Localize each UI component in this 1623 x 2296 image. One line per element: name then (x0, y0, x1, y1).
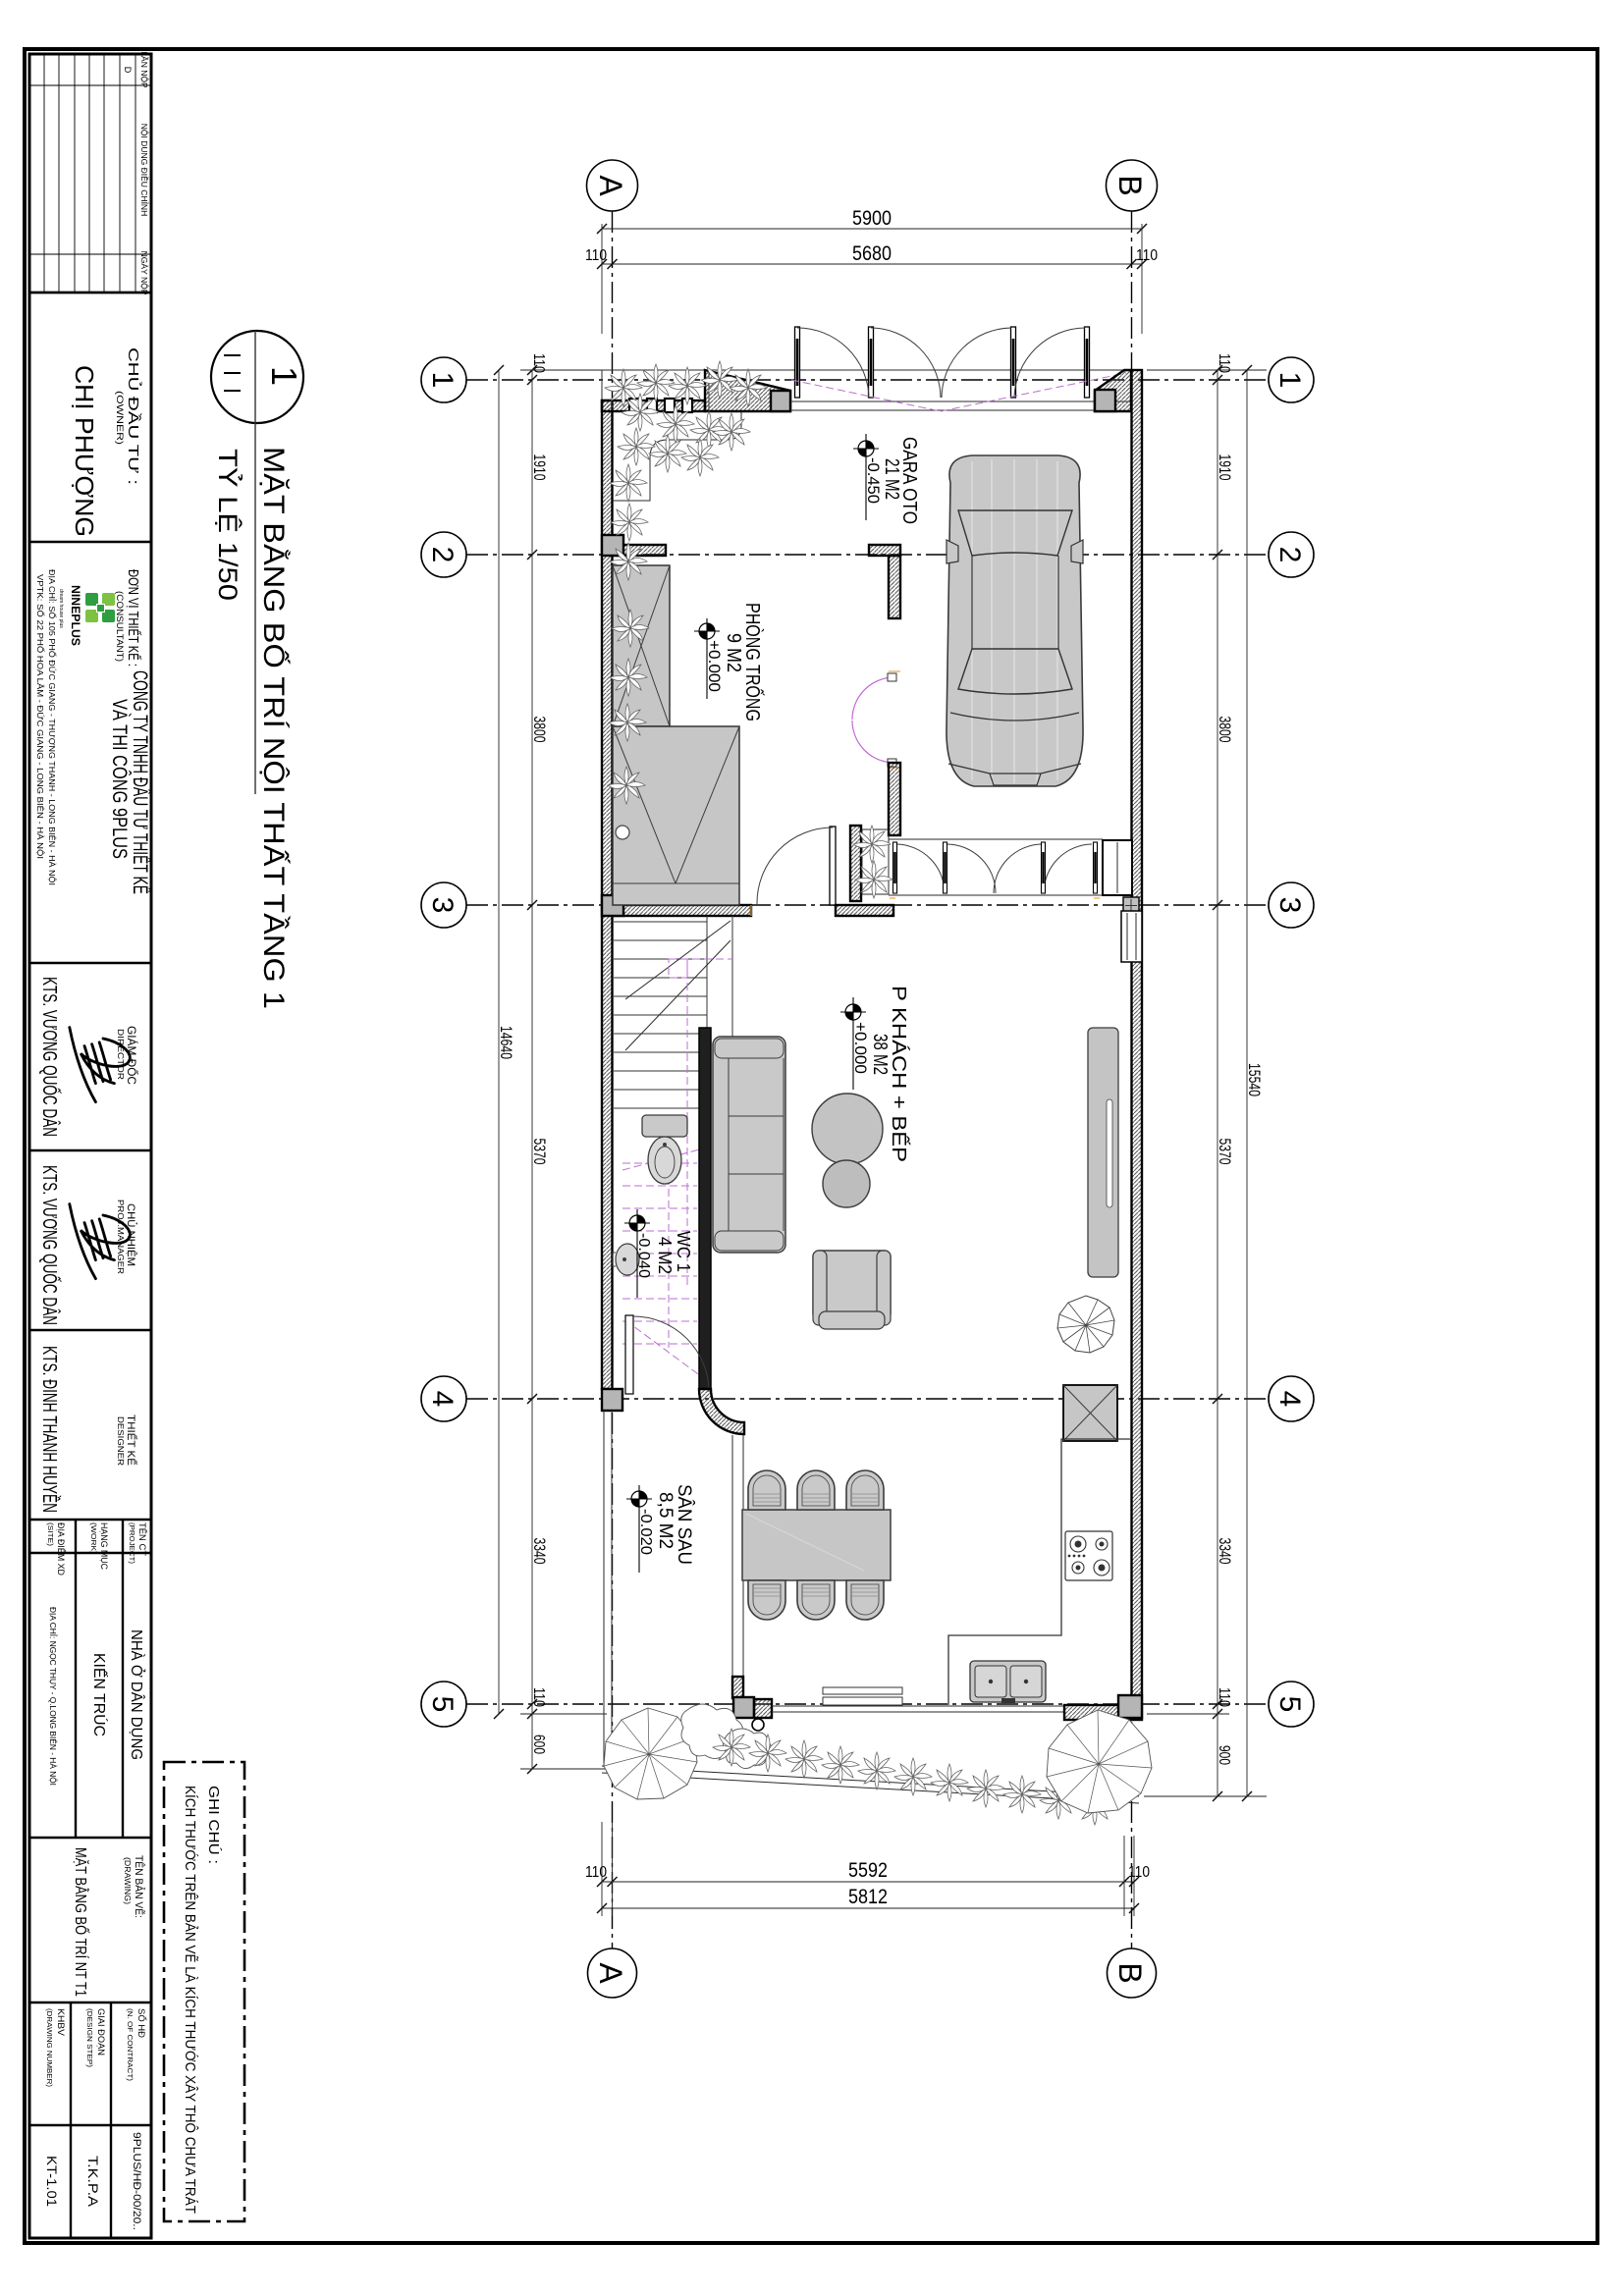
svg-text:CHỊ PHƯỢNG: CHỊ PHƯỢNG (70, 365, 99, 537)
svg-text:TÊN BẢN VẼ:: TÊN BẢN VẼ: (133, 1855, 145, 1918)
svg-text:(WORK): (WORK) (89, 1522, 98, 1555)
svg-text:1910: 1910 (1216, 454, 1234, 481)
svg-text:ĐỊA CHỈ: NGỌC THỤY - Q.LONG BI: ĐỊA CHỈ: NGỌC THỤY - Q.LONG BIÊN - HÀ NỘ… (48, 1607, 57, 1786)
svg-text:(DRAWING NUMBER): (DRAWING NUMBER) (45, 2008, 54, 2088)
svg-text:NHÀ Ở DÂN DỤNG: NHÀ Ở DÂN DỤNG (128, 1629, 146, 1760)
svg-text:MẶT BẰNG BỐ TRÍ NT T1: MẶT BẰNG BỐ TRÍ NT T1 (72, 1847, 91, 1997)
svg-text:2: 2 (1273, 547, 1306, 563)
svg-text:A: A (593, 1962, 628, 1984)
svg-text:4: 4 (1273, 1391, 1306, 1408)
svg-text:38 M2: 38 M2 (869, 1034, 891, 1075)
svg-text:VÀ THI CÔNG 9PLUS: VÀ THI CÔNG 9PLUS (108, 699, 131, 859)
svg-text:D: D (123, 67, 133, 74)
svg-text:(SITE): (SITE) (46, 1522, 55, 1547)
svg-text:3800: 3800 (530, 717, 549, 743)
svg-text:2: 2 (426, 547, 459, 563)
svg-text:+0.000: +0.000 (705, 640, 724, 692)
svg-text:900: 900 (1216, 1745, 1232, 1765)
svg-text:3340: 3340 (1216, 1538, 1234, 1565)
svg-text:5592: 5592 (848, 1859, 888, 1882)
svg-text:CÔNG TY TNHH ĐẦU TƯ THIẾT KẾ: CÔNG TY TNHH ĐẦU TƯ THIẾT KẾ (129, 670, 151, 894)
svg-text:8,5 M2: 8,5 M2 (655, 1492, 676, 1549)
svg-text:MẶT BẰNG BỐ TRÍ NỘI THẤT TẦNG: MẶT BẰNG BỐ TRÍ NỘI THẤT TẦNG 1 (257, 447, 291, 1009)
svg-text:(N. OF CONTRACT): (N. OF CONTRACT) (126, 2008, 135, 2082)
svg-text:5370: 5370 (1216, 1139, 1234, 1165)
svg-text:3: 3 (1273, 897, 1306, 914)
svg-text:110: 110 (530, 1687, 547, 1707)
svg-text:NỘI DUNG ĐIỀU CHỈNH: NỘI DUNG ĐIỀU CHỈNH (139, 124, 150, 216)
svg-text:A: A (593, 175, 628, 196)
svg-text:1: 1 (426, 372, 459, 389)
svg-text:(OWNER): (OWNER) (114, 391, 125, 445)
svg-text:110: 110 (1136, 247, 1158, 264)
svg-text:SỐ HĐ: SỐ HĐ (136, 2008, 147, 2039)
svg-text:-0.450: -0.450 (864, 457, 883, 504)
svg-text:WC 1: WC 1 (674, 1231, 693, 1272)
svg-text:ĐƠN VỊ THIẾT KẾ :: ĐƠN VỊ THIẾT KẾ : (125, 569, 141, 667)
svg-text:DIRECTOR: DIRECTOR (116, 1029, 126, 1080)
svg-text:5680: 5680 (852, 242, 892, 265)
svg-text:5370: 5370 (530, 1139, 549, 1165)
svg-text:-0.020: -0.020 (637, 1509, 654, 1555)
svg-text:(DRAWING): (DRAWING) (123, 1857, 133, 1904)
svg-text:110: 110 (1128, 1864, 1150, 1881)
svg-text:PROJ.MANAGER: PROJ.MANAGER (116, 1200, 126, 1274)
svg-text:(DESIGN STEP): (DESIGN STEP) (85, 2008, 94, 2068)
svg-text:B: B (1112, 175, 1148, 195)
svg-text:5: 5 (426, 1696, 459, 1713)
svg-text:9PLUS/HĐ-00/20..: 9PLUS/HĐ-00/20.. (131, 2132, 142, 2230)
svg-text:NGÀY NỘP: NGÀY NỘP (139, 251, 149, 295)
svg-text:SÂN SAU: SÂN SAU (674, 1484, 695, 1565)
svg-text:1: 1 (1273, 372, 1306, 389)
svg-text:(CONSULTANT): (CONSULTANT) (114, 591, 125, 662)
svg-text:HẠNG MỤC: HẠNG MỤC (99, 1522, 109, 1570)
svg-text:14640: 14640 (497, 1026, 515, 1059)
svg-text:4 M2: 4 M2 (655, 1237, 675, 1274)
svg-text:B: B (1112, 1962, 1148, 1983)
svg-text:+0.000: +0.000 (851, 1022, 870, 1074)
svg-text:TỶ LỆ 1/50: TỶ LỆ 1/50 (213, 449, 244, 601)
svg-text:NINEPLUS: NINEPLUS (69, 585, 82, 646)
svg-text:1910: 1910 (530, 454, 549, 481)
svg-text:KTS. ĐINH THANH HUYỀN: KTS. ĐINH THANH HUYỀN (38, 1346, 61, 1513)
svg-text:dream house plus: dream house plus (58, 589, 64, 628)
svg-text:3: 3 (426, 897, 459, 914)
svg-text:KÍCH THƯỚC TRÊN BẢN VẼ LÀ KÍCH: KÍCH THƯỚC TRÊN BẢN VẼ LÀ KÍCH THƯỚC XÂY… (182, 1786, 198, 2214)
svg-text:KIẾN TRÚC: KIẾN TRÚC (90, 1653, 109, 1736)
svg-text:9 M2: 9 M2 (723, 633, 744, 672)
svg-text:GIAI ĐOẠN: GIAI ĐOẠN (96, 2008, 106, 2056)
svg-text:KTS. VƯƠNG QUỐC DÂN: KTS. VƯƠNG QUỐC DÂN (38, 1165, 62, 1325)
svg-text:4: 4 (426, 1391, 459, 1408)
svg-text:5: 5 (1273, 1696, 1306, 1713)
svg-text:PHÒNG TRỐNG: PHÒNG TRỐNG (741, 603, 765, 721)
svg-text:KHBV: KHBV (56, 2008, 66, 2036)
svg-text:3800: 3800 (1216, 717, 1234, 743)
svg-text:DESIGNER: DESIGNER (116, 1416, 126, 1466)
svg-text:T.K.P.A: T.K.P.A (85, 2156, 101, 2208)
svg-text:CHỦ ĐẦU TƯ :: CHỦ ĐẦU TƯ : (125, 347, 142, 485)
svg-text:P KHÁCH + BẾP: P KHÁCH + BẾP (888, 986, 910, 1162)
svg-text:GIÁM ĐỐC: GIÁM ĐỐC (125, 1026, 139, 1085)
svg-text:1: 1 (264, 366, 304, 386)
svg-text:GHI CHÚ :: GHI CHÚ : (205, 1786, 222, 1864)
svg-text:-0.040: -0.040 (635, 1233, 652, 1278)
svg-text:LẦN NỘP: LẦN NỘP (139, 51, 149, 88)
svg-text:TÊN CT: TÊN CT (137, 1522, 147, 1557)
svg-text:ĐỊA CHỈ: SỐ 105 PHỐ ĐỨC GIANG: ĐỊA CHỈ: SỐ 105 PHỐ ĐỨC GIANG - THƯỢNG T… (47, 569, 58, 885)
svg-text:110: 110 (585, 1864, 607, 1881)
svg-text:110: 110 (585, 247, 607, 264)
svg-text:3340: 3340 (530, 1538, 549, 1565)
svg-text:(PROJECT): (PROJECT) (128, 1522, 136, 1565)
svg-text:110: 110 (1216, 1687, 1232, 1707)
svg-text:GARA OTO: GARA OTO (898, 437, 920, 524)
svg-text:VPTK: SỐ 22 PHỐ HOA LÂM - ĐỨC: VPTK: SỐ 22 PHỐ HOA LÂM - ĐỨC GIANG - LO… (35, 574, 46, 859)
svg-text:15540: 15540 (1245, 1063, 1264, 1096)
svg-text:600: 600 (530, 1735, 547, 1754)
svg-text:5812: 5812 (848, 1886, 888, 1908)
svg-text:ĐỊA ĐIỂM XD: ĐỊA ĐIỂM XD (56, 1522, 67, 1575)
svg-text:KT-1.01: KT-1.01 (44, 2156, 60, 2207)
svg-text:KTS. VƯƠNG QUỐC DÂN: KTS. VƯƠNG QUỐC DÂN (38, 977, 62, 1137)
svg-text:5900: 5900 (852, 207, 892, 230)
